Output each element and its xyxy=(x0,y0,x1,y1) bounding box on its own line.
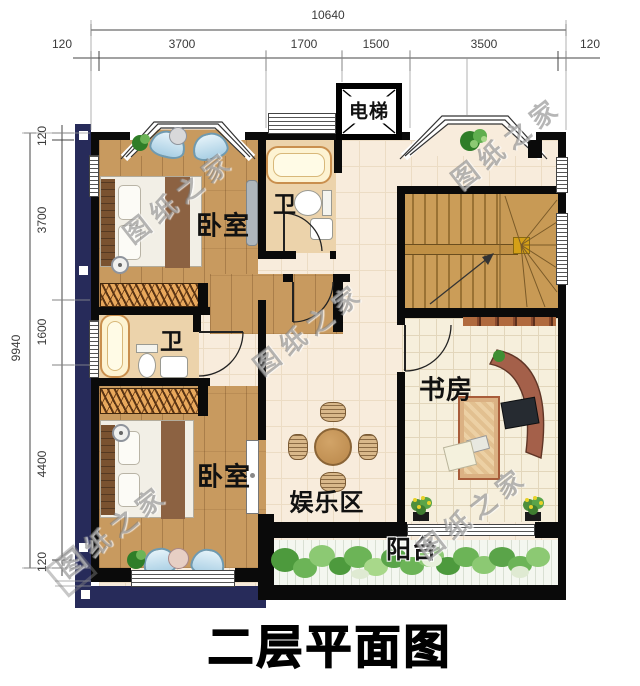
dim-top-seg: 1500 xyxy=(363,37,390,51)
room-label-bedroom2: 卧室 xyxy=(197,457,251,494)
dim-top-seg: 3500 xyxy=(471,37,498,51)
stair-direction-arrow xyxy=(430,253,494,304)
dimension-lines-left xyxy=(24,125,74,576)
plant xyxy=(132,134,150,151)
dim-top-seg: 120 xyxy=(52,37,72,51)
flower-pot xyxy=(411,496,432,521)
computer-monitor-icon xyxy=(501,397,539,429)
dim-left-seg: 120 xyxy=(35,126,49,146)
dim-top-seg: 1700 xyxy=(291,37,318,51)
room-label-bath1: 卫 xyxy=(273,185,297,219)
dim-left-seg: 3700 xyxy=(35,207,49,234)
room-label-bedroom1: 卧室 xyxy=(196,206,250,243)
papers-icon xyxy=(444,441,477,471)
desk-plant-icon xyxy=(493,350,505,362)
dim-total-height: 9940 xyxy=(9,335,23,362)
dim-top-seg: 120 xyxy=(580,37,600,51)
dim-top-seg: 3700 xyxy=(169,37,196,51)
dim-left-seg: 1600 xyxy=(35,319,49,346)
flower-pot xyxy=(523,496,544,521)
room-label-entertainment: 娱乐区 xyxy=(290,483,365,518)
dimension-lines-top xyxy=(73,24,600,71)
desk xyxy=(444,350,544,471)
page-title: 二层平面图 xyxy=(208,611,453,677)
room-label-elevator: 电梯 xyxy=(347,97,391,124)
room-label-bath2: 卫 xyxy=(160,322,184,356)
room-label-study: 书房 xyxy=(419,370,473,407)
plant xyxy=(127,550,146,569)
floorplan-canvas: 电梯 卧室 卫 卫 卧室 书房 娱乐区 阳台 10640 120 3700 17… xyxy=(0,0,640,686)
dim-left-seg: 4400 xyxy=(35,451,49,478)
dim-total-width: 10640 xyxy=(311,8,344,22)
stair-winder-lines xyxy=(500,194,557,308)
